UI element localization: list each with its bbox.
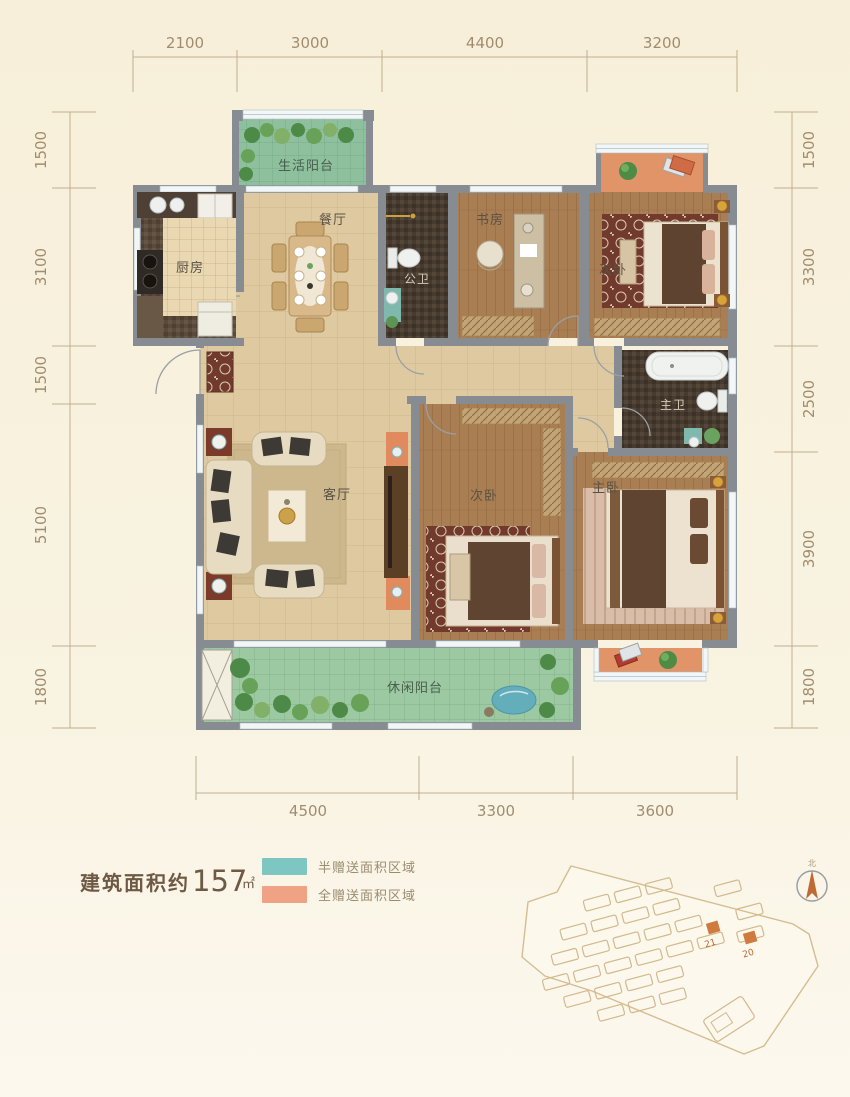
bench xyxy=(450,554,470,600)
dim-bottom-0: 4500 xyxy=(289,802,327,820)
kitchen-sink-icon xyxy=(150,197,166,213)
wardrobe xyxy=(592,462,724,478)
wardrobe xyxy=(543,428,561,516)
label-master-bedroom: 主卧 xyxy=(592,481,620,496)
dim-left-4: 1800 xyxy=(32,668,50,706)
decor-icon xyxy=(392,587,402,597)
plant-icon xyxy=(659,651,677,669)
dim-left-2: 1500 xyxy=(32,356,50,394)
entry-rug xyxy=(207,352,233,392)
dim-top-3: 3200 xyxy=(643,34,681,52)
plant-icon xyxy=(386,316,398,328)
label-bedroom-mid: 次卧 xyxy=(470,488,498,504)
label-kitchen: 厨房 xyxy=(176,260,204,276)
floorplan-page: 2100 3000 4400 3200 4500 3300 3600 1500 … xyxy=(0,0,850,1097)
kitchen-sink-icon xyxy=(170,198,184,212)
label-study: 书房 xyxy=(476,212,504,228)
dim-right-4: 1800 xyxy=(800,668,818,706)
compass-north-label: 北 xyxy=(808,859,816,868)
chair xyxy=(477,241,503,267)
toilet-icon xyxy=(388,248,397,268)
dim-right-3: 3900 xyxy=(800,530,818,568)
wardrobe xyxy=(462,316,534,336)
dim-bottom-1: 3300 xyxy=(477,802,515,820)
plant-icon xyxy=(619,162,637,180)
dim-top-0: 2100 xyxy=(166,34,204,52)
dim-left-1: 3100 xyxy=(32,248,50,286)
label-life-balcony: 生活阳台 xyxy=(278,159,334,174)
dim-top-1: 3000 xyxy=(291,34,329,52)
dim-left-0: 1500 xyxy=(32,131,50,169)
plant-icon xyxy=(704,428,720,444)
legend-label-half-gift: 半赠送面积区域 xyxy=(318,861,416,876)
toilet-icon xyxy=(718,390,727,412)
dim-right-1: 3300 xyxy=(800,248,818,286)
label-leisure-balcony: 休闲阳台 xyxy=(387,681,443,696)
dim-right-0: 1500 xyxy=(800,131,818,169)
lamp-icon xyxy=(713,613,723,623)
dim-top-2: 4400 xyxy=(466,34,504,52)
tv-cabinet xyxy=(384,466,408,578)
legend-label-full-gift: 全赠送面积区域 xyxy=(318,888,416,904)
wardrobe xyxy=(462,408,560,424)
area-value: 157 xyxy=(192,864,247,898)
bay-window-bottom-gift-area xyxy=(598,648,702,672)
lamp-icon xyxy=(717,201,727,211)
kitchen-appliance xyxy=(198,302,232,336)
kitchen-cabinet xyxy=(137,296,163,338)
area-prefix: 建筑面积约 xyxy=(80,871,190,895)
pond xyxy=(492,686,536,714)
lamp-icon xyxy=(713,477,723,487)
dim-left-3: 5100 xyxy=(32,506,50,544)
decor-icon xyxy=(392,447,402,457)
label-living: 客厅 xyxy=(323,487,351,503)
legend-swatch-full-gift xyxy=(262,886,307,903)
label-dining: 餐厅 xyxy=(319,212,347,228)
dim-bottom-2: 3600 xyxy=(636,802,674,820)
label-bedroom-top: 次卧 xyxy=(599,262,627,278)
floorplan-canvas: 2100 3000 4400 3200 4500 3300 3600 1500 … xyxy=(0,0,850,1097)
tv-icon xyxy=(388,476,392,568)
label-public-bath: 公卫 xyxy=(404,272,430,286)
legend-swatch-half-gift xyxy=(262,858,307,875)
wardrobe xyxy=(594,318,720,336)
label-master-bath: 主卫 xyxy=(660,398,686,412)
lamp-icon xyxy=(717,295,727,305)
area-unit: ㎡ xyxy=(242,877,255,892)
dim-right-2: 2500 xyxy=(800,380,818,418)
